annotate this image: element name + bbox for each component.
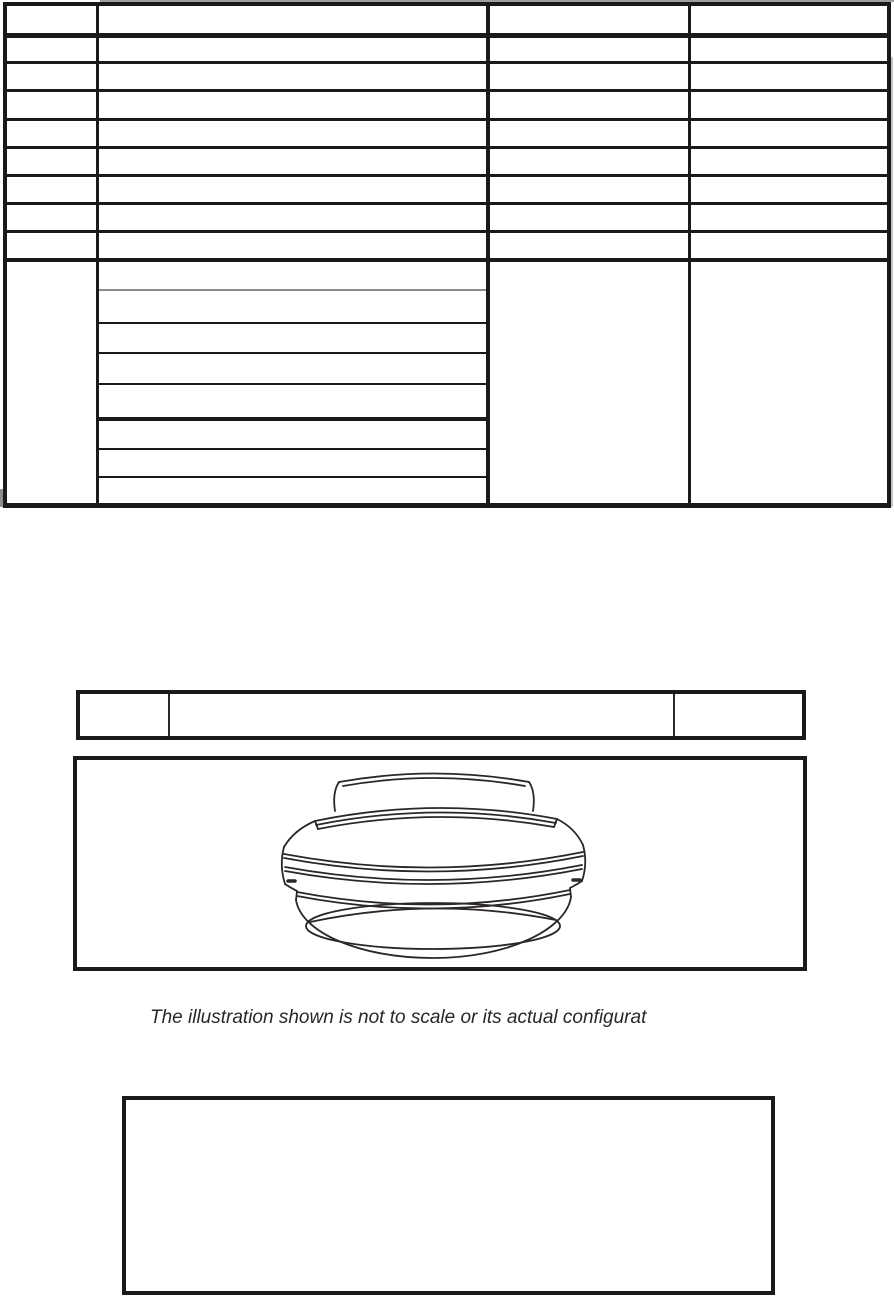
ceiling-dome-fixture-illustration <box>77 760 803 967</box>
subrow-divider <box>99 383 486 385</box>
subrow-divider <box>99 322 486 324</box>
row-divider <box>7 89 887 92</box>
document-page: The illustration shown is not to scale o… <box>0 0 894 1296</box>
subrow-divider-thick <box>99 417 486 421</box>
column-divider-2 <box>486 6 490 503</box>
illustration-caption: The illustration shown is not to scale o… <box>150 1007 646 1029</box>
header-row-divider <box>7 33 887 38</box>
top-table <box>3 2 891 508</box>
row-divider <box>7 146 887 149</box>
illustration-box <box>73 756 807 971</box>
row-divider <box>7 230 887 233</box>
subrow-divider <box>99 352 486 354</box>
table-border-right <box>887 2 891 508</box>
subrow-divider <box>99 448 486 450</box>
table-border-bottom <box>3 503 891 508</box>
bottom-note-box <box>122 1096 775 1295</box>
row-divider <box>7 174 887 177</box>
detail-row-top-divider <box>7 258 887 262</box>
row-divider <box>7 118 887 121</box>
row-divider <box>7 202 887 205</box>
subrow-divider-gray <box>99 289 486 291</box>
bar-cell-divider-2 <box>673 694 675 736</box>
table-border-left <box>3 2 7 508</box>
bar-cell-divider-1 <box>168 694 170 736</box>
column-divider-3 <box>688 6 691 503</box>
row-divider <box>7 61 887 64</box>
middle-header-bar <box>76 690 806 740</box>
table-border-top <box>3 2 891 6</box>
column-divider-1 <box>96 6 99 503</box>
subrow-divider <box>99 476 486 478</box>
